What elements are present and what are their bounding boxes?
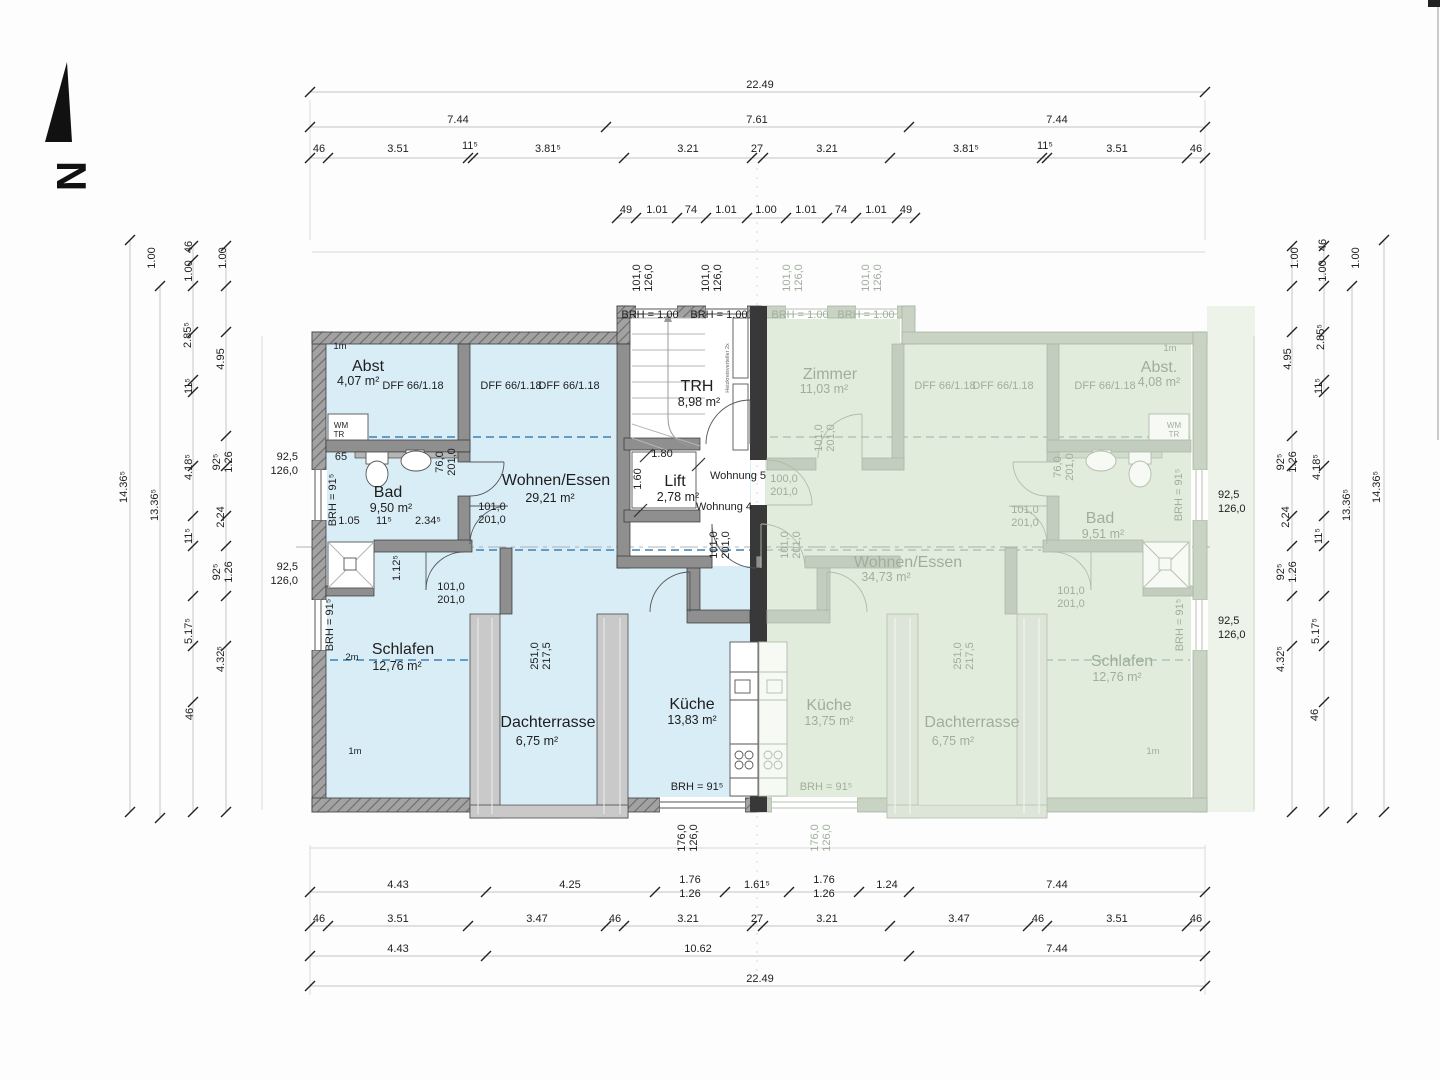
plan-label: 201,0: [825, 424, 837, 452]
plan-label: DFF 66/1.18: [538, 380, 599, 392]
plan-label: BRH = 91⁵: [327, 474, 339, 527]
plan-label: 3.81⁵: [535, 143, 561, 155]
plan-label: 101,0: [1011, 504, 1039, 516]
plan-label: 1.00: [1289, 247, 1301, 268]
plan-label: 4,08 m²: [1138, 375, 1180, 389]
plan-label: 201,0: [1011, 517, 1039, 529]
room-schlafen-left: Schlafen: [372, 641, 434, 658]
plan-label: 11⁵: [1313, 378, 1325, 394]
plan-label: BRH = 1.00: [621, 309, 678, 321]
plan-label: 92,5: [1218, 489, 1239, 501]
room-kueche-left: Küche: [669, 696, 714, 713]
plan-label: DFF 66/1.18: [382, 380, 443, 392]
plan-label: 92⁵: [1275, 564, 1287, 581]
plan-label: 217,5: [541, 642, 553, 670]
plan-label: 3.21: [677, 143, 698, 155]
room-dachterrasse-left: Dachterrasse: [500, 714, 595, 731]
plan-label: 101,0: [1057, 585, 1085, 597]
room-bad-left: Bad: [374, 484, 402, 501]
plan-label: 126,0: [1218, 503, 1246, 515]
plan-label: 3.47: [526, 913, 547, 925]
plan-label: 2,78 m²: [657, 490, 699, 504]
plan-label: TR: [334, 430, 345, 439]
plan-label: 1.61⁵: [744, 879, 770, 891]
room-schlafen-right: Schlafen: [1091, 653, 1153, 670]
hob-icon: [735, 751, 743, 759]
right-eaves-strip: [1207, 306, 1255, 812]
plan-label: 126,0: [270, 465, 298, 477]
plan-label: 126,0: [688, 824, 700, 852]
plan-label: 46: [183, 241, 195, 253]
kitchen-sink-icon: [735, 680, 750, 693]
plan-label: 126,0: [872, 264, 884, 292]
north-letter: N: [48, 161, 95, 191]
plan-label: 2.85⁵: [182, 322, 194, 348]
plan-label: 46: [1190, 913, 1202, 925]
unit-label-wohnung5: Wohnung 5: [710, 470, 766, 482]
plan-label: 1.26: [1287, 451, 1299, 472]
plan-label: 101,0: [631, 264, 643, 292]
plan-label: 1.26: [679, 888, 700, 900]
plan-label: 126,0: [712, 264, 724, 292]
plan-label: WM: [1167, 421, 1182, 430]
plan-label: 4.95: [1282, 348, 1294, 369]
plan-label: 46: [609, 913, 621, 925]
plan-label: 76,0: [434, 451, 446, 472]
plan-label: 251,0: [529, 642, 541, 670]
plan-label: 2.85⁵: [1315, 324, 1327, 350]
room-abst-left: Abst: [352, 358, 385, 375]
plan-label: 46: [1317, 239, 1329, 251]
plan-label: 1.60: [632, 468, 644, 489]
plan-label: 1.00: [183, 260, 195, 281]
plan-label: 4.43: [387, 943, 408, 955]
plan-label: TR: [1169, 430, 1180, 439]
plan-label: DFF 66/1.18: [972, 380, 1033, 392]
plan-label: 2.24: [1280, 506, 1292, 527]
plan-label: 46: [1032, 913, 1044, 925]
plan-label: 6,75 m²: [932, 734, 974, 748]
plan-label: 13,75 m²: [804, 714, 853, 728]
plan-label: 7.61: [746, 114, 767, 126]
plan-label: 1.00: [1317, 260, 1329, 281]
floor-plan-page: N22.497.447.617.44463.5111⁵3.81⁵3.21273.…: [0, 0, 1440, 1080]
plan-label: 3.21: [816, 913, 837, 925]
plan-label: 7.44: [1046, 114, 1067, 126]
plan-label: BRH = 91⁵: [324, 599, 336, 652]
plan-label: 3.21: [816, 143, 837, 155]
room-bad-right: Bad: [1086, 510, 1114, 527]
plan-label: 1.76: [679, 874, 700, 886]
plan-label: WM: [334, 421, 349, 430]
room-trh: TRH: [681, 378, 714, 395]
plan-label: 14.36⁵: [1371, 471, 1383, 503]
floor-plan-canvas: N22.497.447.617.44463.5111⁵3.81⁵3.21273.…: [0, 0, 1440, 1080]
plan-label: 3.51: [1106, 913, 1127, 925]
plan-label: 49: [620, 204, 632, 216]
plan-label: BRH = 91⁵: [671, 781, 724, 793]
plan-label: 4.18⁵: [1311, 454, 1323, 480]
plan-label: 4.32⁵: [215, 646, 227, 672]
plan-label: 1.12⁵: [391, 555, 403, 581]
plan-label: BRH = 1.00: [771, 309, 828, 321]
plan-label: 11⁵: [1313, 528, 1325, 544]
plan-label: 3.81⁵: [953, 143, 979, 155]
room-kueche-right: Küche: [806, 697, 851, 714]
plan-label: 11⁵: [376, 515, 392, 527]
plan-label: 201,0: [720, 531, 732, 559]
plan-label: 101,0: [708, 531, 720, 559]
plan-label: 2.24: [215, 506, 227, 527]
plan-label: 92,5: [277, 451, 298, 463]
plan-label: 201,0: [1057, 598, 1085, 610]
plan-label: 4.95: [215, 348, 227, 369]
plan-label: 49: [900, 204, 912, 216]
plan-label: 27: [751, 913, 763, 925]
dim-total-top: 22.49: [746, 79, 774, 91]
plan-label: 65: [335, 451, 347, 463]
plan-label: 201,0: [1064, 453, 1076, 481]
plan-label: 46: [313, 913, 325, 925]
distributor-box-2: [733, 384, 748, 450]
plan-label: 1.01: [865, 204, 886, 216]
plan-label: 7.44: [447, 114, 468, 126]
plan-label: 74: [685, 204, 697, 216]
plan-label: 1.00: [1350, 247, 1362, 268]
plan-label: 4.43: [387, 879, 408, 891]
plan-label: 4.32⁵: [1275, 646, 1287, 672]
kitchen-counter-right: [759, 642, 787, 796]
plan-label: 126,0: [1218, 629, 1246, 641]
kitchen-counter-left: [730, 642, 758, 796]
plan-label: 10.62: [684, 943, 712, 955]
plan-label: 46: [1190, 143, 1202, 155]
plan-label: 201,0: [478, 514, 506, 526]
plan-label: 1.26: [813, 888, 834, 900]
plan-label: 1.80: [651, 448, 672, 460]
plan-label: 101,0: [437, 581, 465, 593]
plan-label: 13.36⁵: [149, 489, 161, 521]
plan-label: 1.26: [223, 561, 235, 582]
plan-label: 101,0: [781, 264, 793, 292]
plan-label: 101,0: [813, 424, 825, 452]
room-wohnen-right: Wohnen/Essen: [854, 554, 962, 571]
plan-label: BRH = 1.00: [837, 309, 894, 321]
plan-label: 201,0: [770, 486, 798, 498]
plan-label: 1.76: [813, 874, 834, 886]
plan-label: 11⁵: [462, 140, 478, 152]
plan-label: 11⁵: [1037, 140, 1053, 152]
plan-label: 2m: [345, 652, 358, 663]
plan-label: 201,0: [437, 594, 465, 606]
plan-label: 251,0: [952, 642, 964, 670]
plan-label: 5.17⁵: [1310, 618, 1322, 644]
plan-label: 11⁵: [183, 528, 195, 544]
plan-label: 176,0: [676, 824, 688, 852]
room-wohnen-left: Wohnen/Essen: [502, 472, 610, 489]
plan-label: 46: [313, 143, 325, 155]
plan-label: 76,0: [1052, 456, 1064, 477]
north-arrow-icon: [45, 62, 72, 142]
plan-label: 201,0: [446, 448, 458, 476]
plan-label: 1.05: [338, 515, 359, 527]
plan-label: 1.01: [715, 204, 736, 216]
room-zimmer-right: Zimmer: [803, 366, 858, 383]
plan-label: 3.51: [1106, 143, 1127, 155]
plan-label: 3.51: [387, 143, 408, 155]
room-dachterrasse-right: Dachterrasse: [924, 714, 1019, 731]
plan-label: BRH = 91⁵: [800, 781, 853, 793]
plan-label: 6,75 m²: [516, 734, 558, 748]
plan-label: 1m: [1163, 343, 1176, 354]
plan-label: 13,83 m²: [667, 713, 716, 727]
plan-label: 29,21 m²: [525, 491, 574, 505]
plan-label: 100,0: [770, 473, 798, 485]
plan-label: 9,51 m²: [1082, 527, 1124, 541]
plan-label: 46: [184, 708, 196, 720]
plan-label: 1.01: [795, 204, 816, 216]
room-abst-right: Abst.: [1141, 359, 1177, 376]
plan-label: 74: [835, 204, 847, 216]
plan-label: 7.44: [1046, 943, 1067, 955]
plan-label: BRH = 91⁵: [1173, 469, 1185, 522]
plan-label: 126,0: [821, 824, 833, 852]
plan-label: 1m: [1146, 746, 1159, 757]
plan-label: 12,76 m²: [372, 659, 421, 673]
plan-label: 27: [751, 143, 763, 155]
plan-label: 1.00: [146, 247, 158, 268]
plan-label: 126,0: [270, 575, 298, 587]
plan-label: 46: [1309, 709, 1321, 721]
washbasin-icon: [401, 451, 431, 471]
plan-label: 101,0: [700, 264, 712, 292]
plan-label: 92⁵: [211, 564, 223, 581]
plan-label: 217,5: [964, 642, 976, 670]
plan-label: 12,76 m²: [1092, 670, 1141, 684]
plan-label: 7.44: [1046, 879, 1067, 891]
plan-label: 92⁵: [211, 454, 223, 471]
plan-label: 92,5: [1218, 615, 1239, 627]
dim-total-bottom: 22.49: [746, 973, 774, 985]
plan-label: 14.36⁵: [118, 471, 130, 503]
plan-label: 8,98 m²: [678, 395, 720, 409]
plan-label: 176,0: [809, 824, 821, 852]
plan-label: BRH = 91⁵: [1174, 599, 1186, 652]
plan-label: BRH = 1.00: [690, 309, 747, 321]
plan-label: 4.25: [559, 879, 580, 891]
plan-label: 1.24: [876, 879, 897, 891]
plan-label: 1.26: [1287, 561, 1299, 582]
unit-label-wohnung4: Wohnung 4: [696, 501, 752, 513]
plan-label: DFF 66/1.18: [480, 380, 541, 392]
plan-label: 3.51: [387, 913, 408, 925]
plan-label: 1.00: [755, 204, 776, 216]
plan-label: 3.47: [948, 913, 969, 925]
plan-label: 11,03 m²: [800, 382, 848, 396]
plan-label: 126,0: [793, 264, 805, 292]
plan-label: 3.21: [677, 913, 698, 925]
plan-label: 1m: [333, 341, 346, 352]
plan-label: 101,0: [779, 531, 791, 559]
plan-label: 34,73 m²: [861, 570, 910, 584]
room-lift: Lift: [664, 473, 686, 490]
plan-label: 101,0: [860, 264, 872, 292]
plan-label: 126,0: [643, 264, 655, 292]
plan-label: 9,50 m²: [370, 501, 412, 515]
plan-label: DFF 66/1.18: [1074, 380, 1135, 392]
scan-artifacts: [1428, 0, 1440, 440]
plan-label: 4.18⁵: [183, 454, 195, 480]
plan-label: 1m: [348, 746, 361, 757]
plan-label: 1.26: [223, 451, 235, 472]
plan-label: 5.17⁵: [183, 618, 195, 644]
plan-label: 4,07 m²: [337, 374, 379, 388]
plan-label: 92,5: [277, 561, 298, 573]
plan-label: Heizkreisverteiler 2x: [725, 343, 731, 393]
distributor-box-1: [733, 318, 748, 378]
plan-label: 1.00: [217, 247, 229, 268]
plan-label: 11⁵: [183, 378, 195, 394]
plan-label: 201,0: [791, 531, 803, 559]
plan-label: 1.01: [646, 204, 667, 216]
plan-label: 92⁵: [1275, 454, 1287, 471]
plan-label: 2.34⁵: [415, 515, 441, 527]
plan-label: DFF 66/1.18: [914, 380, 975, 392]
plan-label: 101,0: [478, 501, 506, 513]
plan-label: 13.36⁵: [1341, 489, 1353, 521]
